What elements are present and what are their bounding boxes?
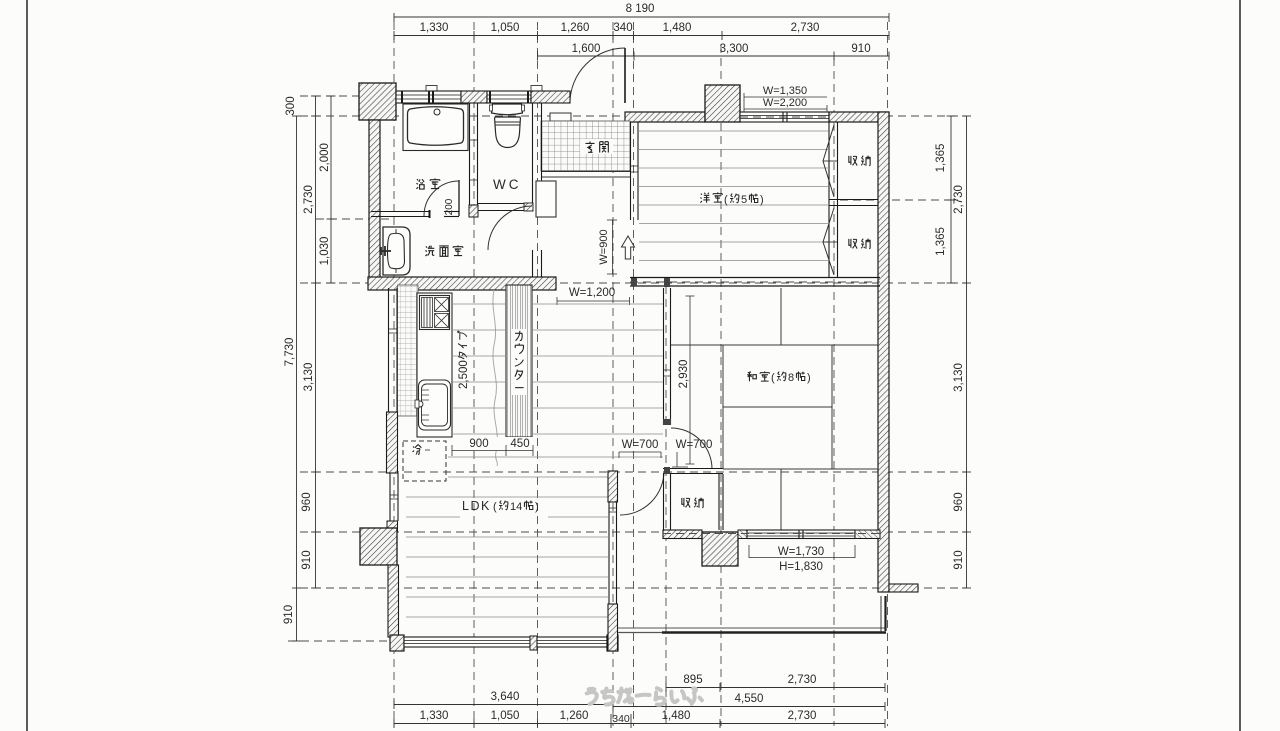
svg-text:1,365: 1,365 xyxy=(935,144,947,173)
svg-text:4,550: 4,550 xyxy=(735,693,764,705)
svg-text:3,130: 3,130 xyxy=(303,363,315,392)
svg-text:3,130: 3,130 xyxy=(953,363,965,392)
svg-text:910: 910 xyxy=(301,550,313,569)
svg-text:14: 14 xyxy=(510,501,522,513)
svg-text:340: 340 xyxy=(613,22,632,34)
svg-text:1,260: 1,260 xyxy=(560,710,589,722)
svg-text:): ) xyxy=(760,194,764,206)
svg-text:WC: WC xyxy=(493,177,522,192)
svg-text:5: 5 xyxy=(741,194,747,206)
svg-text:1,480: 1,480 xyxy=(662,710,691,722)
svg-text:W=2,200: W=2,200 xyxy=(763,97,807,109)
svg-text:910: 910 xyxy=(851,43,870,55)
svg-text:1,050: 1,050 xyxy=(491,22,520,34)
svg-text:960: 960 xyxy=(953,492,965,511)
svg-text:450: 450 xyxy=(510,438,529,450)
svg-text:1,480: 1,480 xyxy=(663,22,692,34)
svg-text:2,730: 2,730 xyxy=(791,22,820,34)
svg-text:2,730: 2,730 xyxy=(953,185,965,214)
svg-text:W=1,200: W=1,200 xyxy=(569,287,615,299)
svg-text:1,600: 1,600 xyxy=(572,43,601,55)
svg-text:1,330: 1,330 xyxy=(420,710,449,722)
svg-text:W=1,350: W=1,350 xyxy=(763,85,807,97)
svg-text:3,640: 3,640 xyxy=(491,691,520,703)
svg-text:7,730: 7,730 xyxy=(284,338,296,367)
svg-text:2,730: 2,730 xyxy=(788,710,817,722)
svg-text:2,930: 2,930 xyxy=(678,360,690,389)
svg-text:LDK: LDK xyxy=(462,499,491,513)
svg-text:8 190: 8 190 xyxy=(626,3,655,15)
svg-text:1,330: 1,330 xyxy=(420,22,449,34)
svg-text:2,500: 2,500 xyxy=(458,360,470,389)
svg-text:8: 8 xyxy=(788,372,794,384)
svg-text:2,730: 2,730 xyxy=(788,674,817,686)
svg-text:1,260: 1,260 xyxy=(561,22,590,34)
svg-text:300: 300 xyxy=(285,96,297,115)
svg-text:910: 910 xyxy=(283,605,295,624)
svg-text:H=1,830: H=1,830 xyxy=(779,561,823,573)
svg-text:(: ( xyxy=(493,501,497,513)
svg-text:960: 960 xyxy=(301,492,313,511)
svg-text:895: 895 xyxy=(683,674,702,686)
svg-text:(: ( xyxy=(771,372,775,384)
svg-text:W=700: W=700 xyxy=(622,439,659,451)
svg-text:1,050: 1,050 xyxy=(491,710,520,722)
svg-text:W=1,730: W=1,730 xyxy=(778,546,824,558)
svg-text:): ) xyxy=(807,372,811,384)
svg-text:1,030: 1,030 xyxy=(319,237,331,266)
svg-text:1,365: 1,365 xyxy=(935,227,947,256)
svg-text:340: 340 xyxy=(612,713,630,725)
svg-text:900: 900 xyxy=(469,438,488,450)
svg-text:910: 910 xyxy=(953,550,965,569)
svg-text:(: ( xyxy=(724,194,728,206)
svg-text:W=900: W=900 xyxy=(598,229,610,264)
svg-text:): ) xyxy=(535,501,539,513)
svg-text:3,300: 3,300 xyxy=(720,43,749,55)
svg-text:2,000: 2,000 xyxy=(319,143,331,172)
svg-text:200: 200 xyxy=(444,198,455,215)
svg-text:2,730: 2,730 xyxy=(303,185,315,214)
